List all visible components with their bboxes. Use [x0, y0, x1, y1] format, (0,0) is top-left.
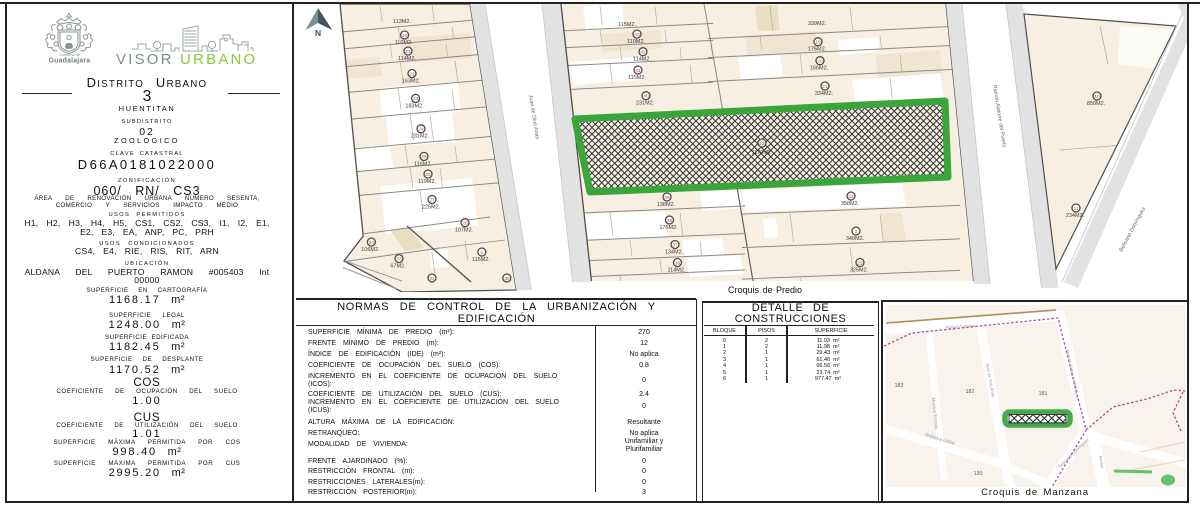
svg-text:134M2.: 134M2.: [665, 249, 684, 255]
svg-text:41: 41: [635, 68, 641, 74]
svg-text:32: 32: [429, 276, 435, 282]
svg-text:38: 38: [667, 218, 673, 224]
svg-text:VISOR URBANO: VISOR URBANO: [116, 51, 257, 68]
svg-text:225M2.: 225M2.: [422, 204, 441, 210]
svg-text:39: 39: [664, 195, 670, 201]
svg-text:113M2.: 113M2.: [393, 19, 411, 25]
svg-text:2: 2: [855, 229, 858, 235]
svg-text:42: 42: [640, 50, 646, 56]
svg-text:25: 25: [421, 154, 427, 160]
svg-text:175M2.: 175M2.: [808, 47, 827, 53]
svg-text:231M2.: 231M2.: [636, 101, 655, 107]
svg-text:10: 10: [1094, 94, 1100, 100]
svg-text:234M2.: 234M2.: [1066, 213, 1085, 219]
svg-text:20: 20: [402, 33, 408, 39]
svg-text:334M2.: 334M2.: [815, 91, 834, 97]
svg-text:106M2.: 106M2.: [361, 247, 380, 253]
svg-text:114M2.: 114M2.: [633, 57, 651, 63]
svg-text:115M2.: 115M2.: [472, 257, 490, 263]
svg-text:1170M2.: 1170M2.: [752, 150, 773, 156]
svg-text:176M2.: 176M2.: [659, 225, 678, 231]
svg-text:114M2.: 114M2.: [668, 267, 686, 273]
svg-text:110M2.: 110M2.: [627, 39, 645, 45]
svg-text:40: 40: [643, 94, 649, 100]
svg-text:25: 25: [857, 260, 863, 266]
svg-text:Gobierno de: Gobierno de: [59, 53, 80, 57]
svg-text:325M2.: 325M2.: [850, 267, 869, 273]
svg-text:339M2.: 339M2.: [808, 21, 827, 27]
svg-text:N: N: [315, 28, 321, 38]
svg-text:37: 37: [672, 242, 678, 248]
svg-text:166M2.: 166M2.: [810, 66, 829, 72]
svg-text:Guadalajara: Guadalajara: [49, 58, 91, 65]
svg-text:11: 11: [1073, 206, 1078, 212]
svg-text:34: 34: [369, 240, 375, 246]
svg-text:110M2.: 110M2.: [395, 40, 413, 46]
svg-text:850M2.: 850M2.: [1087, 101, 1106, 107]
svg-text:22: 22: [409, 71, 415, 77]
svg-text:21: 21: [405, 49, 411, 55]
svg-text:67M2.: 67M2.: [390, 264, 406, 270]
svg-text:1: 1: [481, 250, 484, 256]
svg-text:182: 182: [966, 389, 975, 395]
svg-text:115M2.: 115M2.: [618, 22, 636, 28]
svg-text:231M2.: 231M2.: [411, 134, 430, 140]
svg-text:24: 24: [418, 127, 424, 133]
svg-text:20: 20: [817, 59, 823, 65]
svg-text:115M2.: 115M2.: [628, 75, 646, 81]
svg-text:181: 181: [1039, 391, 1048, 397]
svg-text:30: 30: [504, 276, 510, 282]
svg-text:28: 28: [462, 221, 468, 227]
svg-text:43: 43: [634, 32, 640, 38]
svg-text:119M2.: 119M2.: [418, 179, 436, 185]
svg-text:116M2.: 116M2.: [414, 161, 432, 167]
svg-text:114M2.: 114M2.: [398, 56, 416, 62]
svg-text:33: 33: [396, 256, 402, 262]
svg-text:23: 23: [413, 96, 419, 102]
svg-text:138M2.: 138M2.: [657, 202, 676, 208]
svg-text:27: 27: [429, 197, 435, 203]
svg-text:183M2.: 183M2.: [405, 103, 424, 109]
svg-text:19: 19: [815, 40, 821, 46]
svg-text:358M2.: 358M2.: [841, 201, 860, 207]
svg-text:163M2.: 163M2.: [402, 78, 421, 84]
svg-text:107M2.: 107M2.: [455, 228, 474, 234]
svg-text:36: 36: [675, 260, 681, 266]
svg-text:26: 26: [425, 172, 431, 178]
svg-text:21: 21: [822, 84, 828, 90]
svg-text:22: 22: [759, 141, 765, 147]
svg-text:23: 23: [848, 194, 854, 200]
svg-text:183: 183: [895, 383, 904, 389]
svg-text:130: 130: [974, 471, 983, 477]
svg-text:349M2.: 349M2.: [846, 236, 865, 242]
